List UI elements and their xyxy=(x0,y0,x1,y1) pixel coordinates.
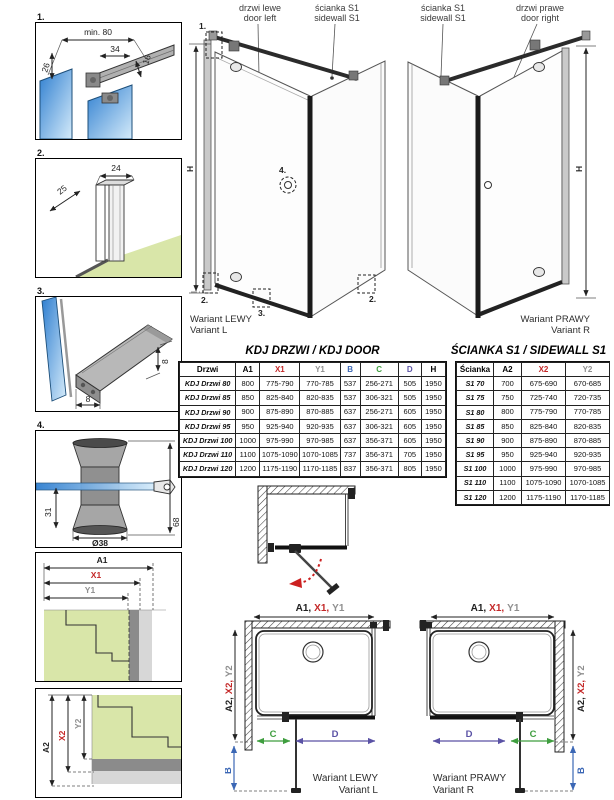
plan-left-caption-en: Variant L xyxy=(339,785,379,796)
table-cell: 637 xyxy=(340,405,360,419)
table-cell: 1000 xyxy=(236,433,260,447)
table-cell: 505 xyxy=(398,391,421,405)
column-header: X1 xyxy=(260,363,300,377)
table-cell: 1950 xyxy=(421,462,445,476)
detail-4-drawing: 68 31 Ø38 xyxy=(36,431,181,547)
table-cell: 870-885 xyxy=(566,433,610,447)
handle-knob xyxy=(285,182,292,189)
door-right-label-pl: drzwi prawe xyxy=(516,3,564,13)
dim-34: 34 xyxy=(110,44,120,54)
table-cell: 605 xyxy=(398,433,421,447)
side-dimension-label: A2,X2,Y2 xyxy=(225,665,235,712)
table-cell: 770-785 xyxy=(300,377,340,391)
table-cell: 505 xyxy=(398,377,421,391)
detail-1-number: 1. xyxy=(37,12,45,22)
table-row: KDJ Drzwi 1001000975-990970-985637356-37… xyxy=(180,433,446,447)
table-cell: 800 xyxy=(494,405,522,419)
detail-3-number: 3. xyxy=(37,286,45,296)
sidewall-label-en: sidewall S1 xyxy=(314,13,360,23)
column-header: A1 xyxy=(236,363,260,377)
column-header: H xyxy=(421,363,445,377)
table-cell: 850 xyxy=(236,391,260,405)
door-left-label-en: door left xyxy=(244,13,277,23)
table-cell: S1 95 xyxy=(457,448,494,462)
table-cell: KDJ Drzwi 95 xyxy=(180,419,236,433)
dim-8-height: 8 xyxy=(160,359,170,364)
b-dimension: B xyxy=(225,746,289,791)
detail-1-drawing: min. 80 34 16 26 xyxy=(36,23,181,139)
dim-26: 26 xyxy=(39,61,52,73)
table-row: S1 11011001075-10901070-1085 xyxy=(457,476,610,490)
table-row: S1 70700675-690670-685 xyxy=(457,377,610,391)
detail-2-panel: 24 25 xyxy=(35,158,182,278)
table-cell: 1100 xyxy=(494,476,522,490)
column-header: Y1 xyxy=(300,363,340,377)
door-left-label-pl: drzwi lewe xyxy=(239,3,281,13)
table-row: KDJ Drzwi 90900875-890870-885637256-2716… xyxy=(180,405,446,419)
table-cell: 1950 xyxy=(421,391,445,405)
floor xyxy=(76,235,181,277)
plan-right-caption-pl: Wariant PRAWY xyxy=(433,773,506,784)
c-label: C xyxy=(270,729,277,740)
table-cell: 356-371 xyxy=(360,433,398,447)
marker-3: 3. xyxy=(258,308,265,318)
variant-right-caption-pl: Wariant PRAWY xyxy=(520,314,590,325)
table-cell: 720-735 xyxy=(566,391,610,405)
kdj-table: DrzwiA1X1Y1BCDH KDJ Drzwi 80800775-79077… xyxy=(178,361,447,478)
plan-variant-left: A1,X1,Y1 C D B A2,X2,Y2 xyxy=(225,600,405,800)
dim-38: Ø38 xyxy=(92,538,108,547)
table-row: S1 95950925-940920-935 xyxy=(457,448,610,462)
table-cell: S1 90 xyxy=(457,433,494,447)
dim-25: 25 xyxy=(55,183,69,197)
table-cell: S1 70 xyxy=(457,377,494,391)
detail-1-panel: min. 80 34 16 26 xyxy=(35,22,182,140)
table-cell: 950 xyxy=(236,419,260,433)
caption: Wariant PRAWY Variant R xyxy=(520,314,590,336)
table-cell: 770-785 xyxy=(566,405,610,419)
c-d-dimensions: D C xyxy=(433,729,554,741)
column-header: A2 xyxy=(494,363,522,377)
table-cell: S1 75 xyxy=(457,391,494,405)
table-cell: 920-935 xyxy=(300,419,340,433)
wall-right xyxy=(555,621,564,752)
wall-left xyxy=(245,621,252,750)
table-cell: 820-835 xyxy=(566,419,610,433)
table-cell: KDJ Drzwi 120 xyxy=(180,462,236,476)
table-cell: 900 xyxy=(494,433,522,447)
pivot-block xyxy=(282,712,289,722)
hinge-bottom xyxy=(231,273,242,282)
table-cell: 1070-1085 xyxy=(566,476,610,490)
b-dimension: B xyxy=(525,746,587,791)
h-dimension: H xyxy=(574,46,596,298)
table-cell: 1950 xyxy=(421,419,445,433)
table-cell: 875-890 xyxy=(522,433,566,447)
door-glass xyxy=(215,52,310,316)
table-cell: 875-890 xyxy=(260,405,300,419)
plan-section xyxy=(92,695,181,784)
table-cell: KDJ Drzwi 110 xyxy=(180,448,236,462)
enclosure xyxy=(268,494,348,553)
s1-table: ŚciankaA2X2Y2 S1 70700675-690670-685S1 7… xyxy=(455,361,610,506)
plan-right-caption-en: Variant R xyxy=(433,785,474,796)
hinge-top xyxy=(231,63,242,72)
marker-4: 4. xyxy=(279,165,286,175)
caption: Wariant LEWY Variant L xyxy=(313,773,379,796)
table-cell: 637 xyxy=(340,433,360,447)
table-cell: 850 xyxy=(494,419,522,433)
table-row: S1 80800775-790770-785 xyxy=(457,405,610,419)
table-cell: S1 120 xyxy=(457,490,494,504)
technical-diagram-page: 1. min. 80 34 16 26 2. 24 xyxy=(0,0,614,800)
view-variant-right: ścianka S1 sidewall S1 drzwi prawe door … xyxy=(400,0,614,340)
table-cell: 920-935 xyxy=(566,448,610,462)
table-cell: 537 xyxy=(340,391,360,405)
column-header: D xyxy=(398,363,421,377)
table-cell: 900 xyxy=(236,405,260,419)
glass-edge xyxy=(42,297,71,401)
table-cell: 870-885 xyxy=(300,405,340,419)
b-label: B xyxy=(576,767,587,774)
dim-min80: min. 80 xyxy=(84,27,112,37)
hinge-bottom xyxy=(534,268,545,277)
table-cell: 1950 xyxy=(421,377,445,391)
table-cell: 970-985 xyxy=(300,433,340,447)
dim-31: 31 xyxy=(43,507,53,517)
top-dimension-label: A1,X1,Y1 xyxy=(296,603,345,614)
wall-left xyxy=(258,486,267,563)
wall-top xyxy=(267,486,355,494)
kdj-table-title: KDJ DRZWI / KDJ DOOR xyxy=(178,345,447,357)
caption: Wariant PRAWY Variant R xyxy=(433,773,506,796)
table-cell: 975-990 xyxy=(260,433,300,447)
table-cell: 1950 xyxy=(421,448,445,462)
sidewall-label-pl: ścianka S1 xyxy=(421,3,465,13)
dim-a2: A2 xyxy=(41,742,51,753)
door-right-label-en: door right xyxy=(521,13,560,23)
plan-left-caption-pl: Wariant LEWY xyxy=(313,773,379,784)
table-cell: 837 xyxy=(340,462,360,476)
table-cell: 705 xyxy=(398,448,421,462)
wall-top xyxy=(420,621,565,628)
table-cell: 256-271 xyxy=(360,405,398,419)
table-cell: 306-321 xyxy=(360,391,398,405)
table-cell: KDJ Drzwi 80 xyxy=(180,377,236,391)
column-header: C xyxy=(360,363,398,377)
table-cell: 820-835 xyxy=(300,391,340,405)
table-cell: 605 xyxy=(398,405,421,419)
table-cell: 605 xyxy=(398,419,421,433)
table-cell: KDJ Drzwi 85 xyxy=(180,391,236,405)
table-cell: S1 100 xyxy=(457,462,494,476)
door-knob xyxy=(515,788,525,793)
detail-3-panel: 8 8 xyxy=(35,296,182,412)
table-row: S1 75750725-740720-735 xyxy=(457,391,610,405)
table-cell: 725-740 xyxy=(522,391,566,405)
table-cell: KDJ Drzwi 90 xyxy=(180,405,236,419)
column-header: B xyxy=(340,363,360,377)
dimensions: min. 80 34 16 26 xyxy=(39,27,153,79)
variant-left-caption-en: Variant L xyxy=(190,325,227,336)
hinge-top xyxy=(534,63,545,72)
c-label: C xyxy=(530,729,537,740)
table-cell: 1070-1085 xyxy=(300,448,340,462)
d-label: D xyxy=(466,729,473,740)
table-cell: 800 xyxy=(236,377,260,391)
table-cell: 1075-1090 xyxy=(522,476,566,490)
table-row: KDJ Drzwi 11011001075-10901070-108573735… xyxy=(180,448,446,462)
sidewall-glass xyxy=(408,62,478,316)
table-cell: 306-321 xyxy=(360,419,398,433)
wall-profile xyxy=(204,40,211,290)
table-cell: 925-940 xyxy=(260,419,300,433)
table-cell: 637 xyxy=(340,419,360,433)
h-label: H xyxy=(574,166,584,172)
shower-tray xyxy=(256,631,372,715)
detail-4-panel: 68 31 Ø38 xyxy=(35,430,182,548)
table-cell: 675-690 xyxy=(522,377,566,391)
table-cell: S1 85 xyxy=(457,419,494,433)
table-cell: 1175-1190 xyxy=(260,462,300,476)
table-cell: 256-271 xyxy=(360,377,398,391)
sidewall-label-pl: ścianka S1 xyxy=(315,3,359,13)
table-cell: 356-371 xyxy=(360,448,398,462)
detail-6-drawing: A2 X2 Y2 xyxy=(36,689,181,797)
detail-6-panel: A2 X2 Y2 xyxy=(35,688,182,798)
plan-variant-right: A1,X1,Y1 D C B A2,X2,Y2 xyxy=(405,600,610,800)
door-glass xyxy=(480,51,562,316)
kdj-header-row: DrzwiA1X1Y1BCDH xyxy=(180,363,446,377)
table-cell: 1950 xyxy=(421,405,445,419)
table-row: S1 90900875-890870-885 xyxy=(457,433,610,447)
enclosure-drawing xyxy=(408,31,590,318)
table-cell: 670-685 xyxy=(566,377,610,391)
table-cell: 1100 xyxy=(236,448,260,462)
dim-x2: X2 xyxy=(57,730,67,741)
column-header: Y2 xyxy=(566,363,610,377)
table-cell: 775-790 xyxy=(260,377,300,391)
table-cell: KDJ Drzwi 100 xyxy=(180,433,236,447)
b-label: B xyxy=(225,767,234,774)
dim-68: 68 xyxy=(171,517,181,527)
dim-8-width: 8 xyxy=(86,394,91,404)
side-dimension-label: A2,X2,Y2 xyxy=(576,665,587,712)
table-row: S1 85850825-840820-835 xyxy=(457,419,610,433)
wall-top xyxy=(245,621,390,628)
enclosure-drawing xyxy=(191,31,385,318)
sidewall-glass xyxy=(312,61,385,316)
variant-right-caption-en: Variant R xyxy=(551,325,590,336)
dim-24: 24 xyxy=(111,163,121,173)
caption: Wariant LEWY Variant L xyxy=(190,314,253,336)
column-header: Ścianka xyxy=(457,363,494,377)
table-row: KDJ Drzwi 85850825-840820-835537306-3215… xyxy=(180,391,446,405)
detail-4-number: 4. xyxy=(37,420,45,430)
table-cell: 775-790 xyxy=(522,405,566,419)
table-cell: 975-990 xyxy=(522,462,566,476)
marker-2-left: 2. xyxy=(201,295,208,305)
s1-header-row: ŚciankaA2X2Y2 xyxy=(457,363,610,377)
table-cell: 700 xyxy=(494,377,522,391)
table-row: KDJ Drzwi 80800775-790770-785537256-2715… xyxy=(180,377,446,391)
table-row: S1 1001000975-990970-985 xyxy=(457,462,610,476)
table-cell: S1 80 xyxy=(457,405,494,419)
table-cell: 1200 xyxy=(236,462,260,476)
table-cell: 356-371 xyxy=(360,462,398,476)
handle-knob xyxy=(485,182,492,189)
table-cell: 1075-1090 xyxy=(260,448,300,462)
table-cell: 1170-1185 xyxy=(566,490,610,504)
detail-5-panel: A1 X1 Y1 xyxy=(35,552,182,682)
door-swing-diagram xyxy=(225,475,385,599)
column-header: Drzwi xyxy=(180,363,236,377)
table-cell: 1175-1190 xyxy=(522,490,566,504)
h-label: H xyxy=(185,166,195,172)
marker-2-right: 2. xyxy=(369,294,376,304)
wall-end-bracket xyxy=(383,620,389,631)
dim-y1: Y1 xyxy=(85,585,96,595)
table-cell: 750 xyxy=(494,391,522,405)
table-row: S1 12012001175-11901170-1185 xyxy=(457,490,610,504)
d-label: D xyxy=(332,729,339,740)
dimensions: A2 X2 Y2 xyxy=(41,695,94,786)
marker-1: 1. xyxy=(199,21,206,31)
detail-5-drawing: A1 X1 Y1 xyxy=(36,553,181,681)
table-cell: 1950 xyxy=(421,433,445,447)
table-cell: S1 110 xyxy=(457,476,494,490)
door-knob xyxy=(291,788,301,793)
detail-2-drawing: 24 25 xyxy=(36,159,181,277)
swing-arrowhead xyxy=(289,578,302,588)
table-cell: 1000 xyxy=(494,462,522,476)
detail-2-number: 2. xyxy=(37,148,45,158)
table-cell: 537 xyxy=(340,377,360,391)
table-row: KDJ Drzwi 12012001175-11901170-118583735… xyxy=(180,462,446,476)
sidewall-label-en: sidewall S1 xyxy=(420,13,466,23)
table-cell: 950 xyxy=(494,448,522,462)
dim-a1: A1 xyxy=(97,555,108,565)
wall-profile xyxy=(562,48,569,284)
table-cell: 1200 xyxy=(494,490,522,504)
dimensions: A1 X1 Y1 xyxy=(44,555,153,610)
view-variant-left: drzwi lewe door left ścianka S1 sidewall… xyxy=(185,0,395,340)
table-cell: 825-840 xyxy=(260,391,300,405)
shower-tray xyxy=(430,631,554,715)
table-cell: 805 xyxy=(398,462,421,476)
top-dimension-label: A1,X1,Y1 xyxy=(471,603,520,614)
table-cell: 737 xyxy=(340,448,360,462)
table-row: KDJ Drzwi 95950925-940920-935637306-3216… xyxy=(180,419,446,433)
table-cell: 825-840 xyxy=(522,419,566,433)
dim-y2: Y2 xyxy=(73,718,83,729)
dim-x1: X1 xyxy=(91,570,102,580)
detail-3-drawing: 8 8 xyxy=(36,297,181,411)
wall-end-bracket xyxy=(348,488,355,499)
variant-left-caption-pl: Wariant LEWY xyxy=(190,314,253,325)
table-cell: 970-985 xyxy=(566,462,610,476)
wall-profile xyxy=(96,180,134,261)
table-cell: 925-940 xyxy=(522,448,566,462)
c-d-dimensions: C D xyxy=(257,729,375,741)
s1-table-title: ŚCIANKA S1 / SIDEWALL S1 xyxy=(443,345,614,357)
column-header: X2 xyxy=(522,363,566,377)
plan-section xyxy=(44,610,166,681)
table-cell: 1170-1185 xyxy=(300,462,340,476)
sidewall-label: ścianka S1 sidewall S1 xyxy=(420,3,466,80)
